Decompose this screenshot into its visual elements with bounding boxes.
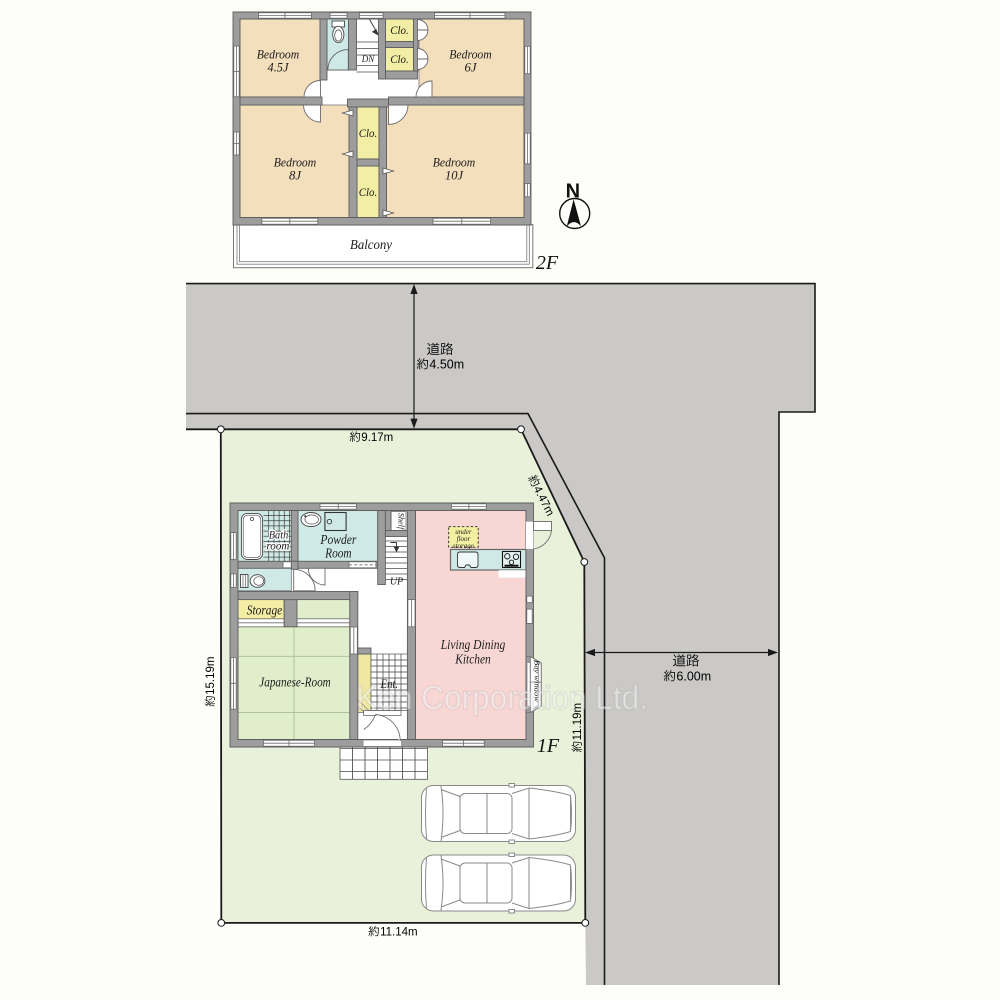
svg-text:storage: storage	[453, 542, 474, 550]
svg-text:Room: Room	[324, 547, 351, 562]
svg-text:N: N	[566, 181, 580, 203]
svg-text:Balcony: Balcony	[350, 237, 392, 252]
svg-text:9.17m: 9.17m	[361, 432, 393, 444]
svg-text:Clo.: Clo.	[390, 23, 409, 37]
svg-text:11.14m: 11.14m	[380, 927, 418, 939]
svg-text:15.19m: 15.19m	[205, 657, 217, 695]
svg-text:10J: 10J	[445, 168, 464, 183]
svg-text:Storage: Storage	[247, 604, 283, 619]
svg-text:Japanese-Room: Japanese-Room	[259, 676, 331, 691]
svg-text:6.00m: 6.00m	[676, 670, 711, 684]
svg-text:Clo.: Clo.	[359, 185, 378, 199]
svg-text:2F: 2F	[536, 252, 559, 274]
svg-text:Ken Corporation Ltd.: Ken Corporation Ltd.	[356, 679, 648, 716]
svg-text:room: room	[266, 541, 289, 553]
svg-text:8J: 8J	[289, 168, 302, 183]
svg-text:Clo.: Clo.	[359, 126, 378, 140]
svg-text:Shelf: Shelf	[397, 513, 407, 531]
svg-text:Clo.: Clo.	[390, 52, 409, 66]
svg-text:4.50m: 4.50m	[429, 358, 464, 372]
svg-text:1F: 1F	[537, 735, 560, 757]
svg-text:UP: UP	[390, 577, 403, 588]
svg-text:DN: DN	[361, 54, 375, 64]
svg-text:Kitchen: Kitchen	[454, 653, 490, 668]
svg-text:4.5J: 4.5J	[268, 60, 290, 75]
svg-text:Living Dining: Living Dining	[440, 638, 505, 653]
svg-text:6J: 6J	[465, 60, 478, 75]
